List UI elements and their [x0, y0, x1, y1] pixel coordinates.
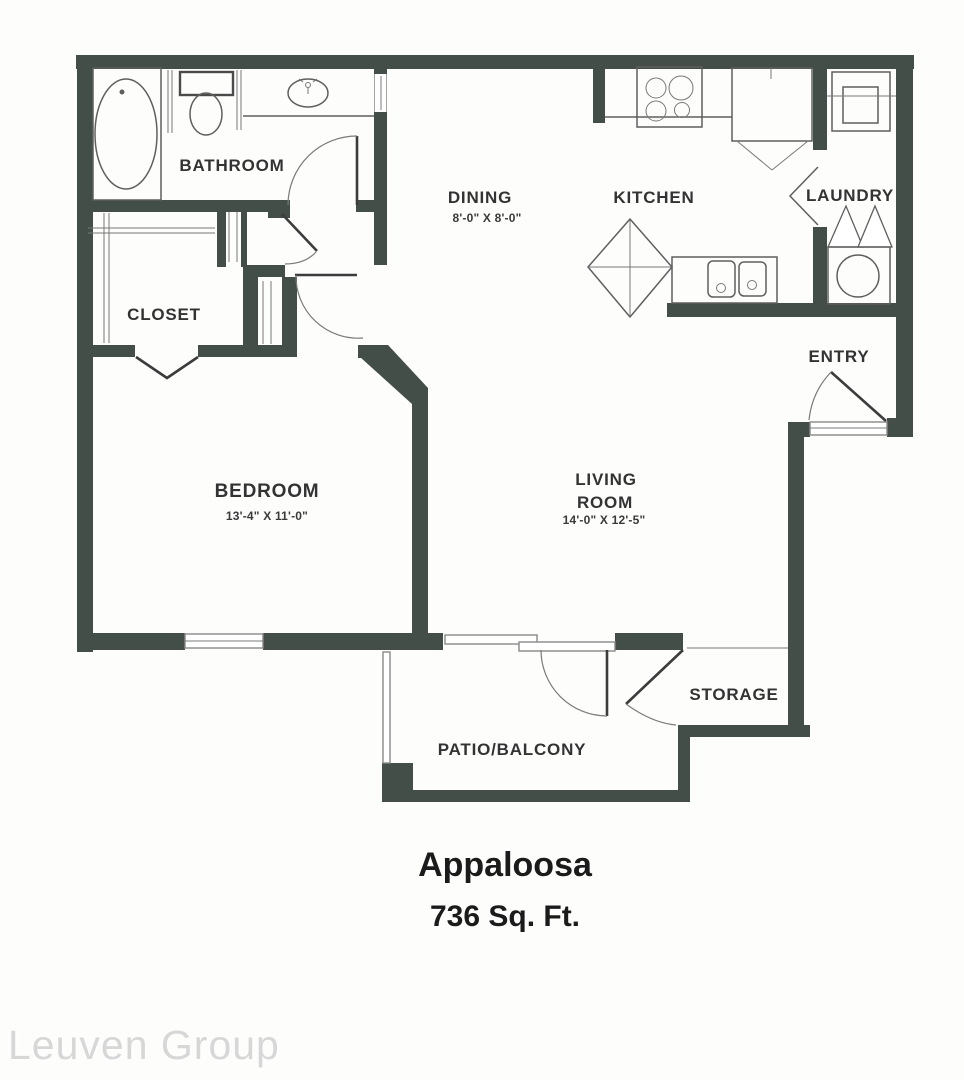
dining-dimensions: 8'-0" X 8'-0" — [452, 211, 521, 225]
wall-segment — [382, 790, 690, 802]
wall-segment — [813, 227, 827, 317]
watermark: Leuven Group — [8, 1022, 280, 1069]
wall-segment — [356, 200, 387, 212]
wall-segment — [887, 418, 913, 437]
bathroom-door — [288, 136, 357, 205]
kitchen-label: KITCHEN — [613, 188, 694, 207]
hall-door — [282, 214, 317, 264]
bathroom-label: BATHROOM — [179, 156, 284, 175]
floor-plan-page: BATHROOM CLOSET BEDROOM 13'-4" X 11'-0" … — [0, 0, 964, 1080]
living-room-label-line1: LIVING — [575, 470, 636, 489]
washer — [827, 72, 896, 131]
wall-segment — [593, 68, 605, 123]
plan-title: Appaloosa — [418, 846, 593, 884]
living-room-label-line2: ROOM — [577, 493, 633, 512]
wall-segment — [217, 208, 226, 267]
wall-segment — [241, 208, 247, 267]
dryer — [828, 247, 890, 304]
wall-segment — [77, 200, 290, 212]
wall-segment — [268, 200, 290, 218]
kitchen-island — [588, 219, 672, 317]
refrigerator — [732, 68, 812, 170]
wall-segment — [243, 265, 285, 277]
wall-segment — [282, 277, 297, 349]
wall-segment — [813, 68, 827, 150]
wall-segment — [360, 345, 428, 404]
bedroom-door — [295, 275, 363, 338]
entry-door — [809, 372, 887, 435]
wall-segment — [77, 633, 185, 650]
laundry-label: LAUNDRY — [806, 186, 894, 205]
wall-segment — [788, 422, 810, 437]
patio-railing — [383, 652, 390, 763]
dining-label: DINING — [448, 188, 512, 207]
living-room-dimensions: 14'-0" X 12'-5" — [563, 513, 646, 527]
vanity-sink — [243, 79, 374, 116]
wall-segment — [615, 633, 683, 650]
wall-segment — [788, 437, 804, 737]
storage-label: STORAGE — [689, 685, 778, 704]
patio-sliding-door — [445, 635, 615, 716]
laundry-bifold-doors — [828, 206, 892, 247]
floor-plan-drawing: BATHROOM CLOSET BEDROOM 13'-4" X 11'-0" … — [0, 0, 964, 1080]
wall-segment — [412, 400, 428, 650]
bedroom-dimensions: 13'-4" X 11'-0" — [226, 509, 308, 523]
bedroom-label: BEDROOM — [215, 481, 320, 502]
plan-area: 736 Sq. Ft. — [430, 900, 580, 933]
kitchen-sink — [672, 257, 777, 303]
bathtub — [93, 68, 161, 200]
closet-bifold-door — [136, 357, 198, 378]
wall-segment — [77, 345, 135, 357]
entry-label: ENTRY — [809, 347, 870, 366]
wall-segment — [667, 303, 913, 317]
closet-label: CLOSET — [127, 305, 201, 324]
wall-segment — [198, 345, 297, 357]
wall-segment — [76, 55, 914, 69]
patio-label: PATIO/BALCONY — [438, 740, 587, 759]
stove — [637, 67, 702, 127]
bedroom-window — [185, 634, 263, 648]
wall-segment — [896, 55, 913, 437]
toilet — [168, 70, 241, 135]
wall-segment — [678, 725, 810, 737]
